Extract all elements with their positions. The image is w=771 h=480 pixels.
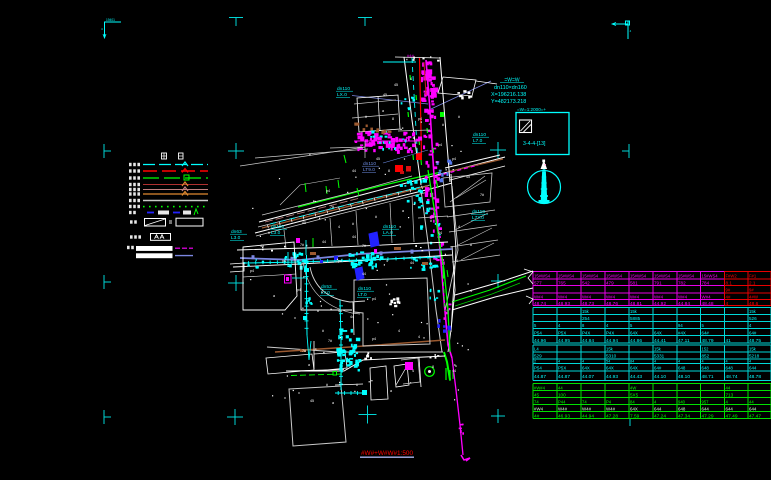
svg-text:644: 644 <box>702 406 710 411</box>
svg-text:45: 45 <box>383 93 387 97</box>
svg-text:8: 8 <box>317 309 319 313</box>
svg-text:8.1: 8.1 <box>726 280 733 285</box>
svg-text:254: 254 <box>582 316 590 321</box>
svg-text:44.07: 44.07 <box>582 374 594 380</box>
svg-text:45: 45 <box>260 244 264 248</box>
svg-text:a: a <box>390 389 392 393</box>
svg-text:152: 152 <box>702 347 710 352</box>
svg-text:648: 648 <box>726 366 734 371</box>
svg-text:648: 648 <box>702 366 710 371</box>
svg-text:2: 2 <box>534 360 536 364</box>
svg-text:44: 44 <box>352 235 356 239</box>
svg-text:44: 44 <box>350 315 354 319</box>
svg-text:45: 45 <box>310 399 314 403</box>
svg-text:W#4: W#4 <box>606 294 616 299</box>
svg-text:4: 4 <box>726 360 728 364</box>
svg-text:p4: p4 <box>372 337 376 341</box>
svg-text:a: a <box>402 209 404 213</box>
svg-text:W#4: W#4 <box>654 294 664 299</box>
svg-text:W#4: W#4 <box>702 294 712 299</box>
svg-text:48.78: 48.78 <box>749 374 761 380</box>
svg-text:44.84: 44.84 <box>582 338 594 344</box>
svg-text:44.94: 44.94 <box>606 338 618 344</box>
svg-text:#: # <box>365 115 367 119</box>
svg-text:45: 45 <box>302 221 306 225</box>
svg-text:W4#: W4# <box>558 406 568 411</box>
svg-text:48.75: 48.75 <box>749 338 761 344</box>
svg-text:2.1: 2.1 <box>749 280 756 285</box>
svg-text:L4: L4 <box>534 347 539 352</box>
svg-text:4: 4 <box>410 77 412 81</box>
svg-text:#: # <box>430 219 432 223</box>
svg-text:84: 84 <box>630 399 635 404</box>
svg-text:48.10: 48.10 <box>678 374 690 380</box>
svg-text:7#: 7# <box>480 193 484 197</box>
svg-text:44.96: 44.96 <box>534 338 546 344</box>
svg-text:648: 648 <box>678 406 686 411</box>
svg-text:#: # <box>356 383 358 387</box>
svg-text:8: 8 <box>388 169 390 173</box>
svg-text:644: 644 <box>749 406 757 411</box>
svg-text:47.11: 47.11 <box>678 338 690 344</box>
svg-text:#4#: #4# <box>407 53 414 58</box>
svg-text:44.86: 44.86 <box>630 338 642 344</box>
svg-text:15#WS4: 15#WS4 <box>582 273 599 278</box>
svg-text:64X: 64X <box>606 366 614 371</box>
svg-text:15k: 15k <box>654 347 662 352</box>
svg-text:48.74: 48.74 <box>726 374 738 380</box>
svg-text:15#WS4: 15#WS4 <box>654 273 671 278</box>
svg-text:15k: 15k <box>582 309 590 314</box>
svg-text:F#1: F#1 <box>749 273 757 278</box>
svg-text:p4: p4 <box>282 259 286 263</box>
svg-text:44.84: 44.84 <box>678 301 690 307</box>
svg-text:P5X: P5X <box>558 331 566 336</box>
svg-text:#W#+W#W#1:500: #W#+W#W#1:500 <box>361 450 413 457</box>
svg-text:64#: 64# <box>702 331 710 336</box>
svg-text:44.87: 44.87 <box>534 374 546 380</box>
svg-text:4: 4 <box>470 289 472 293</box>
svg-text:852: 852 <box>702 354 710 359</box>
svg-text:41: 41 <box>726 338 732 344</box>
svg-text:581: 581 <box>630 280 638 285</box>
svg-text:47.47: 47.47 <box>749 413 761 419</box>
svg-text:5885: 5885 <box>630 316 641 321</box>
svg-text:5218: 5218 <box>749 354 760 359</box>
svg-text:7.59: 7.59 <box>630 413 640 419</box>
svg-text:48.48: 48.48 <box>702 301 714 307</box>
svg-text:a: a <box>382 109 384 113</box>
svg-text:#: # <box>326 383 328 387</box>
svg-text:45: 45 <box>466 175 470 179</box>
svg-text:#W4: #W4 <box>534 406 544 411</box>
svg-text:44.10: 44.10 <box>654 374 666 380</box>
svg-text:P4: P4 <box>606 399 612 404</box>
svg-text:W#4: W#4 <box>558 294 568 299</box>
svg-text:a: a <box>308 363 310 367</box>
svg-text:84: 84 <box>630 360 634 364</box>
svg-text:644: 644 <box>749 366 757 371</box>
svg-text:4: 4 <box>558 360 560 364</box>
svg-text:W#4: W#4 <box>678 294 688 299</box>
svg-text:64X: 64X <box>582 366 590 371</box>
svg-text:9#: 9# <box>749 288 754 293</box>
svg-text:45: 45 <box>376 157 380 161</box>
svg-text:479: 479 <box>606 280 614 285</box>
svg-text:644: 644 <box>726 406 734 411</box>
svg-text:9#: 9# <box>726 288 731 293</box>
svg-text:48.93: 48.93 <box>558 301 570 307</box>
svg-text:4: 4 <box>726 301 729 307</box>
svg-text:44.94: 44.94 <box>582 413 594 419</box>
svg-text:15#WS4: 15#WS4 <box>534 273 551 278</box>
svg-text:15#WS4: 15#WS4 <box>630 273 647 278</box>
svg-text:dn110×dn160: dn110×dn160 <box>494 85 527 91</box>
svg-text:74: 74 <box>534 399 539 404</box>
svg-text:P5X: P5X <box>558 366 566 371</box>
svg-text:44: 44 <box>452 369 456 373</box>
svg-text:7#: 7# <box>328 339 332 343</box>
svg-text:644: 644 <box>654 406 662 411</box>
svg-text:64X: 64X <box>654 331 662 336</box>
svg-text:44: 44 <box>322 240 326 244</box>
svg-text:W4#: W4# <box>582 406 592 411</box>
svg-text:W#4: W#4 <box>630 294 640 299</box>
svg-text:48.76: 48.76 <box>606 301 618 307</box>
svg-text:7#: 7# <box>302 349 306 353</box>
svg-text:8: 8 <box>392 117 394 121</box>
svg-text:p4: p4 <box>438 143 442 147</box>
svg-text:4: 4 <box>456 259 458 263</box>
svg-text:74: 74 <box>582 399 587 404</box>
svg-text:=W=1:2000=+: =W=1:2000=+ <box>517 107 546 112</box>
svg-text:4#: 4# <box>726 294 731 299</box>
svg-text:577: 577 <box>534 280 542 285</box>
svg-text:4#: 4# <box>534 413 540 419</box>
svg-text:4: 4 <box>458 225 460 229</box>
svg-text:44.41: 44.41 <box>654 338 666 344</box>
svg-text:8: 8 <box>470 243 472 247</box>
svg-text:48.71: 48.71 <box>702 374 714 380</box>
svg-text:48.73: 48.73 <box>582 301 594 307</box>
svg-text:p4: p4 <box>338 259 342 263</box>
svg-text:X=196216.138: X=196216.138 <box>491 92 526 98</box>
svg-text:4: 4 <box>582 360 584 364</box>
svg-text:p4: p4 <box>326 189 330 193</box>
svg-text:15k: 15k <box>606 347 614 352</box>
svg-text:19401: 19401 <box>106 18 115 22</box>
svg-text:P4X: P4X <box>606 331 614 336</box>
svg-text:4: 4 <box>678 360 680 364</box>
svg-text:4: 4 <box>386 259 388 263</box>
svg-text:47.29: 47.29 <box>702 413 714 419</box>
svg-text:P54: P54 <box>534 331 542 336</box>
svg-text:940: 940 <box>678 399 686 404</box>
svg-text:5310: 5310 <box>606 354 617 359</box>
svg-text:44.43: 44.43 <box>630 374 642 380</box>
svg-text:45: 45 <box>534 392 540 397</box>
svg-text:15#WS4: 15#WS4 <box>606 273 623 278</box>
svg-text:44: 44 <box>362 272 366 276</box>
svg-text:#: # <box>268 231 270 235</box>
svg-text:#: # <box>375 215 377 219</box>
svg-text:7#: 7# <box>362 244 366 248</box>
svg-text:W#4: W#4 <box>582 294 592 299</box>
svg-text:713: 713 <box>726 392 734 397</box>
svg-text:44: 44 <box>338 309 342 313</box>
svg-text:15#WS4: 15#WS4 <box>678 273 695 278</box>
svg-text:44: 44 <box>410 261 414 265</box>
svg-text:p4: p4 <box>250 269 254 273</box>
svg-text:64X: 64X <box>630 331 638 336</box>
svg-text:648: 648 <box>678 366 686 371</box>
svg-text:5X5: 5X5 <box>630 392 639 397</box>
svg-text:44: 44 <box>558 385 563 390</box>
svg-text:F#W2: F#W2 <box>726 273 738 278</box>
svg-text:64X: 64X <box>630 366 638 371</box>
svg-text:782: 782 <box>678 280 686 285</box>
svg-text:4W: 4W <box>630 385 636 390</box>
svg-text:48.74: 48.74 <box>534 301 546 307</box>
svg-text:44: 44 <box>352 169 356 173</box>
svg-text:100: 100 <box>558 392 566 397</box>
svg-text:957: 957 <box>702 399 710 404</box>
svg-text:#W#4: #W#4 <box>534 385 546 390</box>
svg-text:15#WS4: 15#WS4 <box>702 273 719 278</box>
svg-text:765: 765 <box>558 280 566 285</box>
svg-text:P54: P54 <box>534 366 542 371</box>
svg-text:p4: p4 <box>418 117 422 121</box>
svg-text:44.95: 44.95 <box>558 338 570 344</box>
svg-text:4: 4 <box>398 329 400 333</box>
svg-text:542: 542 <box>582 280 590 285</box>
svg-text:46.93: 46.93 <box>558 413 570 419</box>
svg-text:4: 4 <box>702 360 704 364</box>
svg-text:Y=482173.218: Y=482173.218 <box>491 99 526 105</box>
svg-text:529: 529 <box>534 354 542 359</box>
svg-text:94: 94 <box>678 323 683 328</box>
svg-text:48.6: 48.6 <box>749 301 759 307</box>
svg-text:48.79: 48.79 <box>702 338 714 344</box>
svg-text:P44: P44 <box>558 399 566 404</box>
svg-text:#: # <box>352 222 354 226</box>
svg-text:4#W: 4#W <box>749 294 759 299</box>
svg-text:#: # <box>442 123 444 127</box>
svg-text:44.93: 44.93 <box>606 374 618 380</box>
svg-text:47.34: 47.34 <box>678 413 690 419</box>
svg-text:7#: 7# <box>330 205 334 209</box>
svg-text:15k: 15k <box>749 309 757 314</box>
svg-text:7#: 7# <box>300 243 304 247</box>
svg-text:p4: p4 <box>452 157 456 161</box>
svg-text:8: 8 <box>432 365 434 369</box>
svg-text:#4X: #4X <box>678 331 686 336</box>
svg-text:44: 44 <box>726 385 731 390</box>
svg-text:64X: 64X <box>630 406 638 411</box>
svg-text:54: 54 <box>606 360 610 364</box>
svg-text:45: 45 <box>394 83 398 87</box>
svg-text:4: 4 <box>654 360 656 364</box>
svg-text:p4: p4 <box>297 288 301 292</box>
svg-text:526: 526 <box>749 316 757 321</box>
svg-text:47.24: 47.24 <box>654 413 666 419</box>
svg-text:#: # <box>322 329 324 333</box>
svg-text:64#: 64# <box>749 331 757 336</box>
svg-text:W4#: W4# <box>606 406 616 411</box>
svg-text:44: 44 <box>438 231 442 235</box>
svg-text:784: 784 <box>702 280 710 285</box>
svg-text:4: 4 <box>418 335 420 339</box>
svg-text:4: 4 <box>412 369 414 373</box>
svg-text:44.87: 44.87 <box>558 374 570 380</box>
svg-text:15k: 15k <box>630 309 638 314</box>
svg-text:791: 791 <box>654 280 662 285</box>
svg-text:W#4: W#4 <box>534 294 544 299</box>
svg-text:15#WS4: 15#WS4 <box>558 273 575 278</box>
svg-text:44: 44 <box>749 399 754 404</box>
svg-text:P4X: P4X <box>582 331 590 336</box>
svg-text:15k: 15k <box>749 347 757 352</box>
svg-text:a: a <box>273 294 275 298</box>
svg-text:4: 4 <box>338 225 340 229</box>
svg-text:4: 4 <box>749 360 751 364</box>
svg-text:64#: 64# <box>654 366 662 371</box>
svg-text:a: a <box>332 401 334 405</box>
svg-text:44.92: 44.92 <box>654 301 666 307</box>
svg-text:p4: p4 <box>372 297 376 301</box>
svg-text:5331: 5331 <box>654 354 665 359</box>
svg-text:48.81: 48.81 <box>630 301 642 307</box>
svg-text:47.28: 47.28 <box>606 413 618 419</box>
svg-text:#: # <box>458 115 460 119</box>
svg-text:47.49: 47.49 <box>726 413 738 419</box>
svg-text:3-4-4-[13]: 3-4-4-[13] <box>523 141 546 147</box>
